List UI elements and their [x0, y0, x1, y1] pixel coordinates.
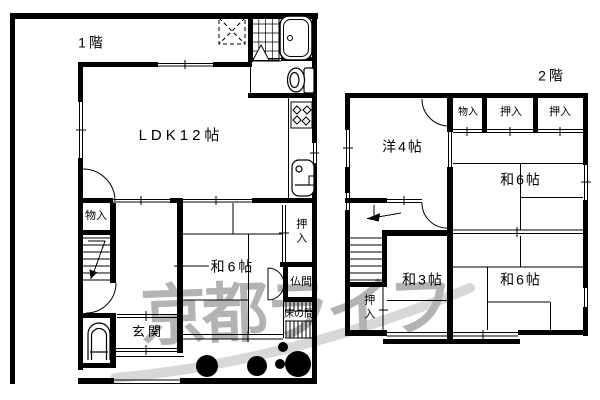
floor1-title: 1階 — [78, 36, 106, 51]
room-label-monoire-1f: 物入 — [85, 211, 107, 223]
floorplan-canvas: 京都ライフ — [0, 0, 600, 400]
room-label-washitsu6-1f: 和6帖 — [211, 260, 256, 275]
room-label-oshiire-west: 押入 — [362, 294, 374, 322]
room-label-youshitsu4: 洋4帖 — [382, 140, 424, 155]
room-label-ldk: LDK12帖 — [139, 128, 224, 144]
room-label-washitsu6-south: 和6帖 — [500, 273, 542, 288]
room-label-oshiire-b: 押入 — [549, 107, 571, 119]
labels-layer: 1階 LDK12帖 物入 和6帖 押入 仏間 床の間 玄関 2階 洋4帖 物入 … — [0, 0, 600, 400]
room-label-washitsu6-north: 和6帖 — [500, 173, 542, 188]
room-label-monoire-2f: 物入 — [458, 108, 478, 119]
room-label-washitsu3: 和3帖 — [402, 273, 444, 288]
room-label-oshiire-a: 押入 — [500, 107, 522, 119]
room-label-tokonoma: 床の間 — [284, 310, 314, 321]
floor2-title: 2階 — [538, 69, 566, 84]
room-label-genkan: 玄関 — [132, 325, 164, 339]
room-label-butsuma: 仏間 — [290, 277, 312, 289]
room-label-oshiire-1f: 押入 — [294, 218, 306, 246]
